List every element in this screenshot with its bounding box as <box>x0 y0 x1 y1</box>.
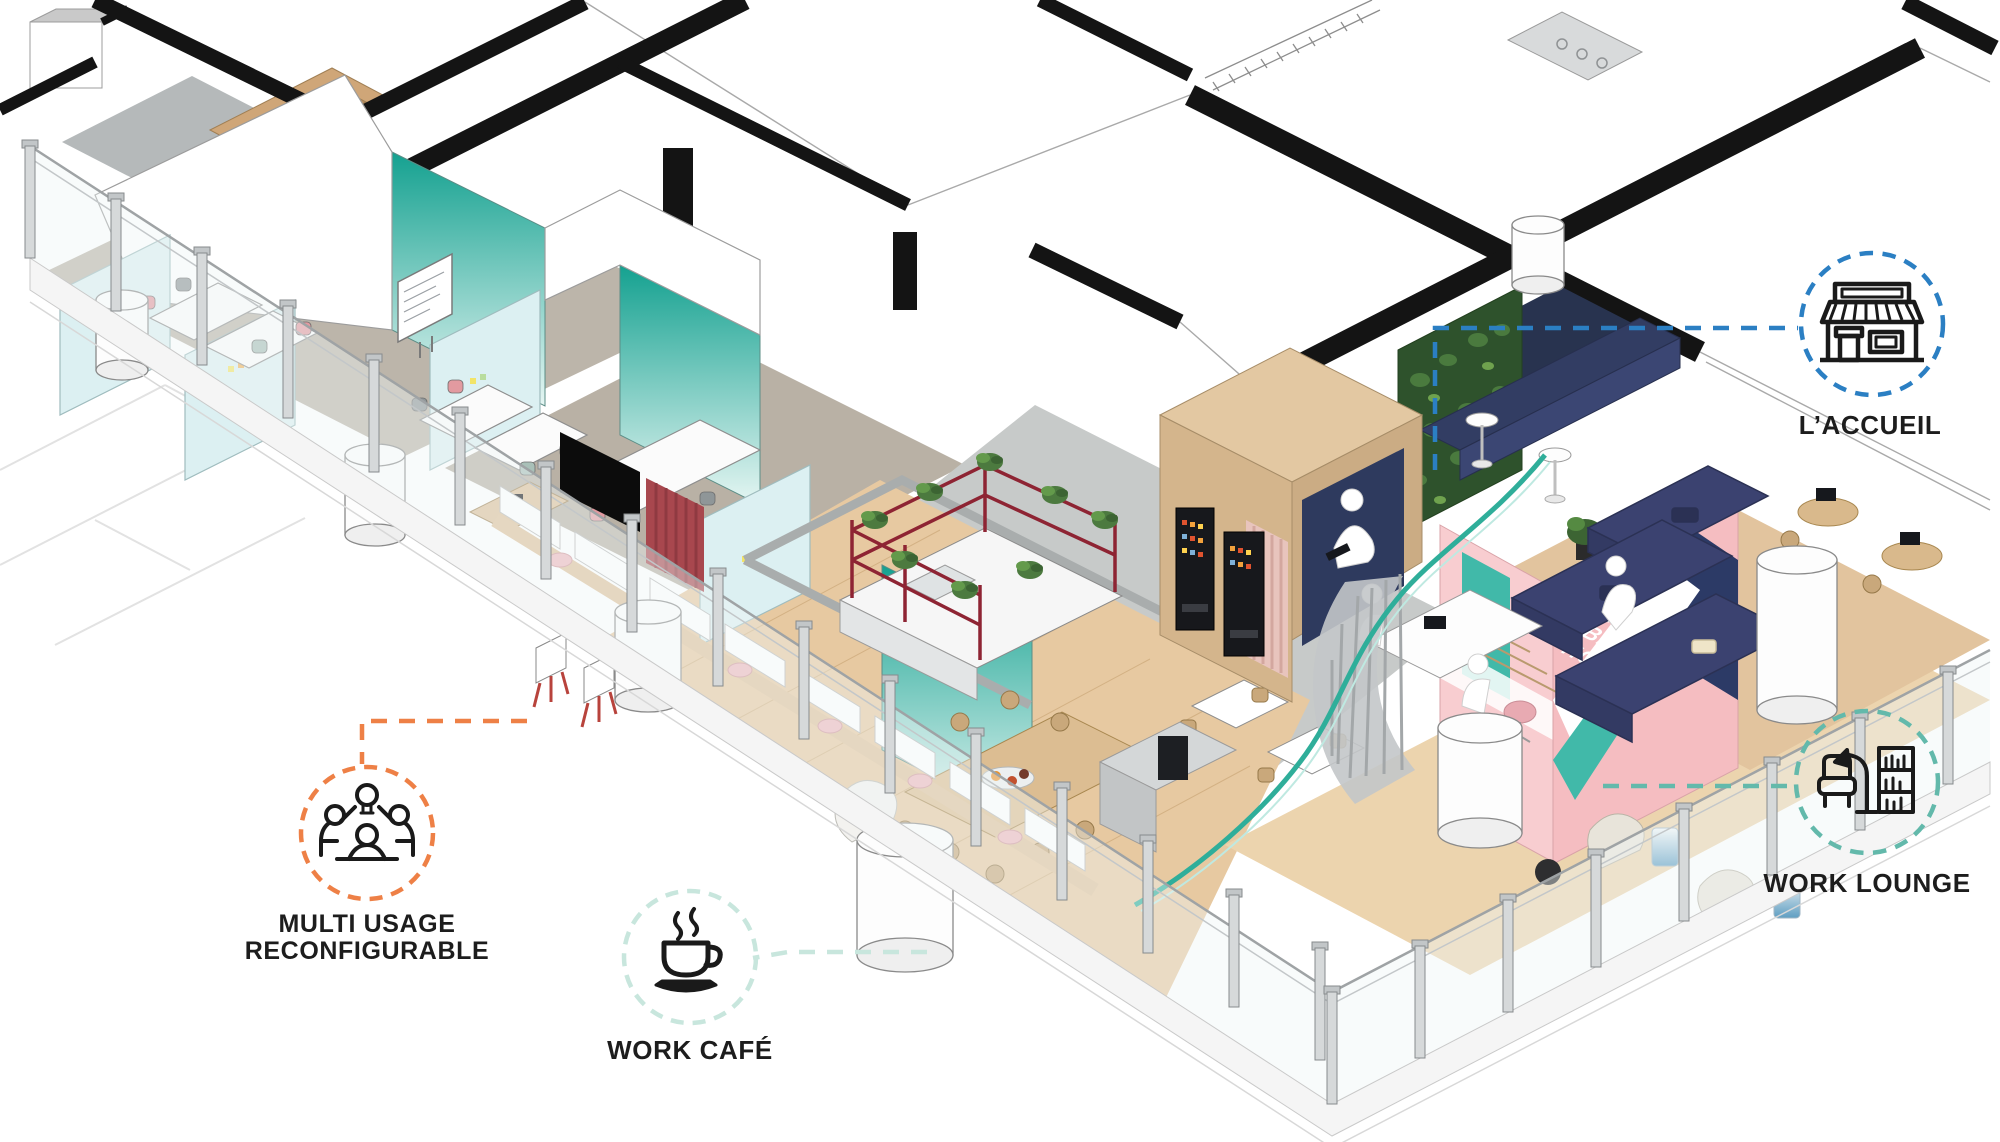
callout-multi-usage: MULTI USAGE RECONFIGURABLE <box>297 763 437 903</box>
callout-accueil: L’ACCUEIL <box>1796 248 1948 400</box>
callout-leader-lines <box>0 0 2000 1142</box>
multi-usage-label: MULTI USAGE RECONFIGURABLE <box>245 911 490 965</box>
lounge-furniture-icon <box>1819 748 1913 812</box>
multi-usage-label-line2: RECONFIGURABLE <box>245 938 490 965</box>
callout-work-lounge: WORK LOUNGE <box>1791 706 1943 858</box>
accueil-label: L’ACCUEIL <box>1799 410 1942 441</box>
office-isometric-rendering: MAKING THE WORLD A BETTER HOME <box>0 0 2000 1142</box>
multi-usage-label-line1: MULTI USAGE <box>245 911 490 938</box>
storefront-icon <box>1820 284 1924 360</box>
callout-work-cafe: WORK CAFÉ <box>620 887 760 1027</box>
accueil-leader-line <box>1435 328 1798 470</box>
collaboration-people-icon <box>321 785 413 859</box>
work-lounge-label: WORK LOUNGE <box>1763 868 1970 899</box>
work-cafe-leader-line <box>753 952 927 958</box>
multi-usage-leader-line <box>362 721 527 764</box>
work-cafe-dashed-circle <box>624 891 756 1023</box>
coffee-cup-icon <box>656 909 720 991</box>
work-cafe-label: WORK CAFÉ <box>607 1035 773 1066</box>
